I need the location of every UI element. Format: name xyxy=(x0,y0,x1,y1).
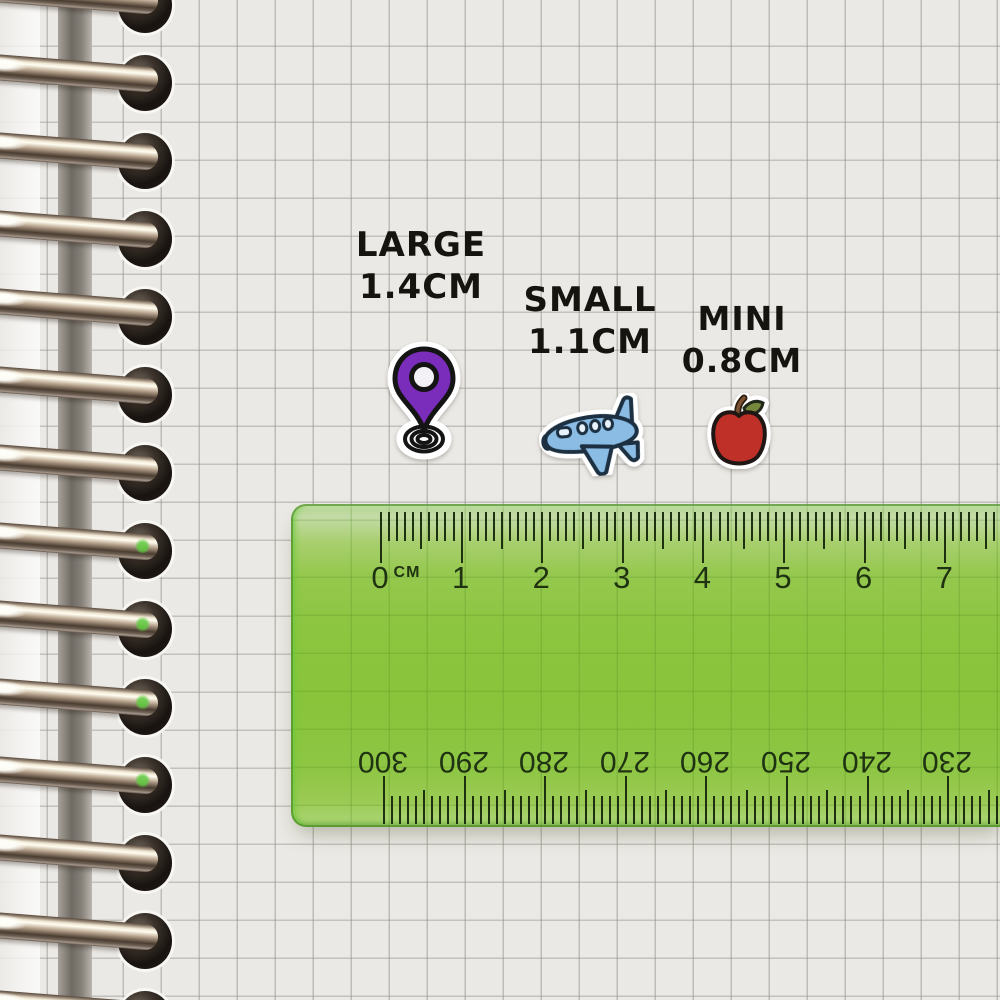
ruler-tick-bottom xyxy=(971,796,973,824)
ruler-tick-top xyxy=(839,512,841,541)
ruler-tick-top xyxy=(638,512,640,541)
ruler-tick-top xyxy=(412,512,414,541)
ruler-tick-bottom xyxy=(593,796,595,824)
ruler-tick-bottom xyxy=(496,796,498,824)
ruler-tick-bottom xyxy=(746,790,748,824)
ruler-tick-top xyxy=(517,512,519,541)
ruler-tick-top xyxy=(469,512,471,541)
ruler-tick-top xyxy=(525,512,527,541)
ruler-cm-number: 3 xyxy=(613,560,630,596)
ruler-tick-top xyxy=(928,512,930,541)
ruler-tick-bottom xyxy=(697,796,699,824)
ruler-tick-bottom xyxy=(415,796,417,824)
ruler-tick-bottom xyxy=(512,796,514,824)
ruler-tick-top xyxy=(646,512,648,541)
ruler-tick-top xyxy=(573,512,575,541)
green-ruler: 01234567300290280270260250240230CM xyxy=(291,504,1000,827)
ruler-tick-bottom xyxy=(705,776,707,824)
ruler-tick-bottom xyxy=(947,776,949,824)
airplane-sticker xyxy=(536,391,657,481)
ruler-tick-top xyxy=(880,512,882,541)
ruler-tick-top xyxy=(896,512,898,541)
ruler-mm-number: 280 xyxy=(519,744,569,778)
ruler-tick-top xyxy=(743,512,745,549)
ruler-tick-bottom xyxy=(568,796,570,824)
ruler-tick-top xyxy=(864,512,866,563)
ruler-tick-bottom xyxy=(738,796,740,824)
ruler-tick-top xyxy=(380,512,382,563)
ruler-tick-bottom xyxy=(456,796,458,824)
ruler-tick-bottom xyxy=(552,796,554,824)
ruler-tick-bottom xyxy=(407,796,409,824)
ruler-tick-bottom xyxy=(955,796,957,824)
ruler-cm-number: 4 xyxy=(694,560,711,596)
ruler-mm-number: 290 xyxy=(439,744,489,778)
ruler-tick-top xyxy=(453,512,455,541)
ruler-tick-top xyxy=(436,512,438,541)
ruler-tick-bottom xyxy=(762,796,764,824)
ruler-tick-top xyxy=(670,512,672,541)
ruler-tick-bottom xyxy=(681,796,683,824)
ruler-tick-top xyxy=(831,512,833,541)
ruler-tick-bottom xyxy=(794,796,796,824)
ruler-tick-bottom xyxy=(480,796,482,824)
ruler-tick-top xyxy=(678,512,680,541)
label-large-name: LARGE xyxy=(311,224,531,266)
ruler-tick-bottom xyxy=(891,796,893,824)
ruler-tick-top xyxy=(614,512,616,541)
ruler-tick-top xyxy=(702,512,704,563)
ruler-tick-bottom xyxy=(633,796,635,824)
ruler-cm-number: 7 xyxy=(936,560,953,596)
ruler-mm-number: 230 xyxy=(922,744,972,778)
ruler-cm-number: 0 xyxy=(371,560,388,596)
ruler-tick-bottom xyxy=(383,776,385,824)
ruler-tick-top xyxy=(993,512,995,541)
ruler-tick-bottom xyxy=(754,796,756,824)
ruler-tick-top xyxy=(549,512,551,541)
ruler-tick-bottom xyxy=(641,796,643,824)
ruler-tick-bottom xyxy=(867,776,869,824)
pin-hole-icon xyxy=(412,365,437,390)
ruler-tick-bottom xyxy=(834,796,836,824)
ruler-tick-bottom xyxy=(657,796,659,824)
ruler-tick-bottom xyxy=(899,796,901,824)
ruler-mm-number: 240 xyxy=(842,744,892,778)
ruler-tick-top xyxy=(710,512,712,541)
ruler-cm-number: 2 xyxy=(533,560,550,596)
ruler-tick-bottom xyxy=(979,796,981,824)
ruler-tick-top xyxy=(694,512,696,541)
ruler-tick-top xyxy=(428,512,430,541)
ruler-tick-bottom xyxy=(625,776,627,824)
ruler-tick-top xyxy=(904,512,906,549)
ruler-tick-top xyxy=(920,512,922,541)
ruler-tick-bottom xyxy=(609,796,611,824)
location-pin-sticker xyxy=(385,341,463,465)
ruler-tick-bottom xyxy=(439,796,441,824)
ruler-tick-bottom xyxy=(859,796,861,824)
ruler-tick-top xyxy=(404,512,406,541)
ruler-tick-top xyxy=(960,512,962,541)
ruler-tick-top xyxy=(654,512,656,541)
ruler-tick-top xyxy=(396,512,398,541)
label-mini-name: MINI xyxy=(632,298,852,340)
ruler-tick-bottom xyxy=(447,796,449,824)
ruler-tick-bottom xyxy=(786,776,788,824)
ruler-tick-top xyxy=(719,512,721,541)
ruler-tick-top xyxy=(872,512,874,541)
ruler-tick-top xyxy=(936,512,938,541)
ruler-tick-top xyxy=(541,512,543,563)
ruler-tick-bottom xyxy=(423,790,425,824)
apple-sticker xyxy=(707,393,771,469)
ruler-tick-top xyxy=(565,512,567,541)
ruler-tick-bottom xyxy=(601,796,603,824)
ruler-tick-bottom xyxy=(472,796,474,824)
ruler-tick-top xyxy=(622,512,624,563)
ruler-tick-bottom xyxy=(826,790,828,824)
ruler-tick-bottom xyxy=(576,796,578,824)
ruler-tick-top xyxy=(968,512,970,541)
ruler-tick-bottom xyxy=(391,796,393,824)
ruler-tick-bottom xyxy=(818,796,820,824)
ruler-tick-bottom xyxy=(778,796,780,824)
ruler-tick-top xyxy=(847,512,849,541)
ruler-tick-top xyxy=(985,512,987,549)
ruler-tick-top xyxy=(791,512,793,541)
ruler-tick-top xyxy=(606,512,608,541)
ruler-tick-top xyxy=(557,512,559,541)
ruler-tick-bottom xyxy=(504,790,506,824)
ruler-tick-bottom xyxy=(488,796,490,824)
ruler-tick-bottom xyxy=(520,796,522,824)
ruler-tick-top xyxy=(582,512,584,549)
ruler-tick-bottom xyxy=(850,796,852,824)
ruler-tick-top xyxy=(944,512,946,563)
ruler-tick-bottom xyxy=(810,796,812,824)
ruler-tick-top xyxy=(783,512,785,563)
ruler-tick-bottom xyxy=(431,796,433,824)
ruler-tick-bottom xyxy=(923,796,925,824)
ruler-mm-number: 300 xyxy=(358,744,408,778)
ruler-tick-bottom xyxy=(875,796,877,824)
ruler-tick-top xyxy=(501,512,503,549)
ruler-tick-top xyxy=(799,512,801,541)
ruler-tick-bottom xyxy=(528,796,530,824)
ruler-mm-number: 250 xyxy=(761,744,811,778)
ruler-tick-top xyxy=(485,512,487,541)
apple-fruit xyxy=(713,412,765,463)
ruler-tick-bottom xyxy=(665,790,667,824)
ruler-tick-top xyxy=(477,512,479,541)
ruler-tick-bottom xyxy=(842,796,844,824)
ruler-cm-number: 1 xyxy=(452,560,469,596)
ruler-tick-bottom xyxy=(464,776,466,824)
ruler-tick-top xyxy=(976,512,978,541)
photo-canvas: LARGE 1.4CM SMALL 1.1CM MINI 0.8CM xyxy=(0,0,1000,1000)
ruler-tick-top xyxy=(767,512,769,541)
ruler-tick-bottom xyxy=(673,796,675,824)
ruler-tick-top xyxy=(952,512,954,541)
ruler-tick-top xyxy=(598,512,600,541)
ruler-tick-bottom xyxy=(544,776,546,824)
ruler-tick-top xyxy=(509,512,511,541)
ruler-tick-bottom xyxy=(560,796,562,824)
ruler-tick-bottom xyxy=(939,796,941,824)
ruler-tick-top xyxy=(856,512,858,541)
ruler-tick-bottom xyxy=(770,796,772,824)
ruler-tick-bottom xyxy=(915,796,917,824)
ruler-tick-bottom xyxy=(722,796,724,824)
ruler-cm-number: 5 xyxy=(774,560,791,596)
ruler-tick-bottom xyxy=(907,790,909,824)
ruler-tick-bottom xyxy=(988,790,990,824)
ruler-tick-top xyxy=(493,512,495,541)
label-mini: MINI 0.8CM xyxy=(632,298,852,382)
ruler-mm-number: 260 xyxy=(680,744,730,778)
ruler-tick-bottom xyxy=(617,796,619,824)
ruler-tick-top xyxy=(388,512,390,541)
ruler-tick-top xyxy=(775,512,777,541)
ruler-tick-top xyxy=(662,512,664,549)
label-mini-size: 0.8CM xyxy=(632,340,852,382)
ruler-tick-bottom xyxy=(585,790,587,824)
ruler-tick-bottom xyxy=(730,796,732,824)
ruler-tick-top xyxy=(727,512,729,541)
ruler-tick-top xyxy=(420,512,422,549)
ruler-tick-bottom xyxy=(963,796,965,824)
ruler-tick-bottom xyxy=(996,796,998,824)
ruler-tick-bottom xyxy=(399,796,401,824)
ruler-tick-top xyxy=(823,512,825,549)
ruler-tick-bottom xyxy=(931,796,933,824)
ruler-tick-top xyxy=(759,512,761,541)
ruler-unit-label: CM xyxy=(394,564,421,582)
ruler-tick-top xyxy=(912,512,914,541)
ruler-tick-bottom xyxy=(649,796,651,824)
ruler-tick-bottom xyxy=(536,796,538,824)
ruler-tick-top xyxy=(735,512,737,541)
ruler-tick-top xyxy=(444,512,446,541)
ruler-tick-top xyxy=(461,512,463,563)
ruler-tick-bottom xyxy=(883,796,885,824)
ruler-tick-top xyxy=(807,512,809,541)
ruler-tick-top xyxy=(630,512,632,541)
ruler-tick-top xyxy=(751,512,753,541)
ruler-tick-top xyxy=(686,512,688,541)
ruler-tick-bottom xyxy=(802,796,804,824)
ruler-tick-bottom xyxy=(689,796,691,824)
ruler-tick-top xyxy=(888,512,890,541)
ruler-tick-top xyxy=(590,512,592,541)
ruler-tick-top xyxy=(533,512,535,541)
ruler-tick-top xyxy=(815,512,817,541)
ruler-cm-number: 6 xyxy=(855,560,872,596)
ruler-tick-bottom xyxy=(713,796,715,824)
ruler-mm-number: 270 xyxy=(600,744,650,778)
